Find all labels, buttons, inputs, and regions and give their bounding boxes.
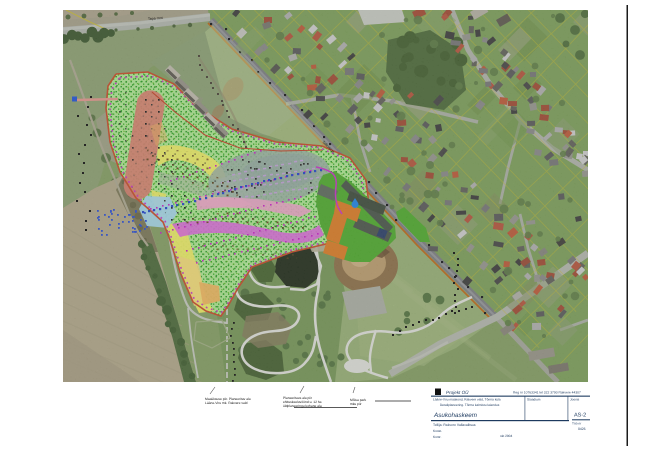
svg-text:Lääne-Viru mk. Rakvere vald: Lääne-Viru mk. Rakvere vald xyxy=(205,401,248,405)
svg-text:Joonis: Joonis xyxy=(570,398,580,402)
svg-text:Töö nr: Töö nr xyxy=(572,422,582,426)
svg-text:mku piir: mku piir xyxy=(350,402,362,406)
svg-text:okt 2004: okt 2004 xyxy=(500,434,512,438)
svg-text:Lääne-Viru maakond, Rakvere va: Lääne-Viru maakond, Rakvere vald, Tõrma … xyxy=(433,398,501,402)
svg-text:Staadium: Staadium xyxy=(527,398,541,402)
svg-text:Detailplaneering. Tõrma kalmi: Detailplaneering. Tõrma kalmistu laiendu… xyxy=(440,403,500,407)
svg-text:AS-2: AS-2 xyxy=(574,413,586,419)
svg-text:Reg nr 10763341 tel 322 3790 R: Reg nr 10763341 tel 322 3790 Rakvere 443… xyxy=(513,391,581,395)
svg-text:0426: 0426 xyxy=(578,427,586,431)
svg-text:Projekt OÜ: Projekt OÜ xyxy=(446,390,469,395)
svg-text:Kontr.: Kontr. xyxy=(433,435,442,439)
svg-text:Tellija: Rakvere Vallavalitsus: Tellija: Rakvere Vallavalitsus xyxy=(433,423,476,427)
svg-text:Koost.: Koost. xyxy=(433,429,442,433)
svg-text:Asukohaskeem: Asukohaskeem xyxy=(433,412,477,419)
